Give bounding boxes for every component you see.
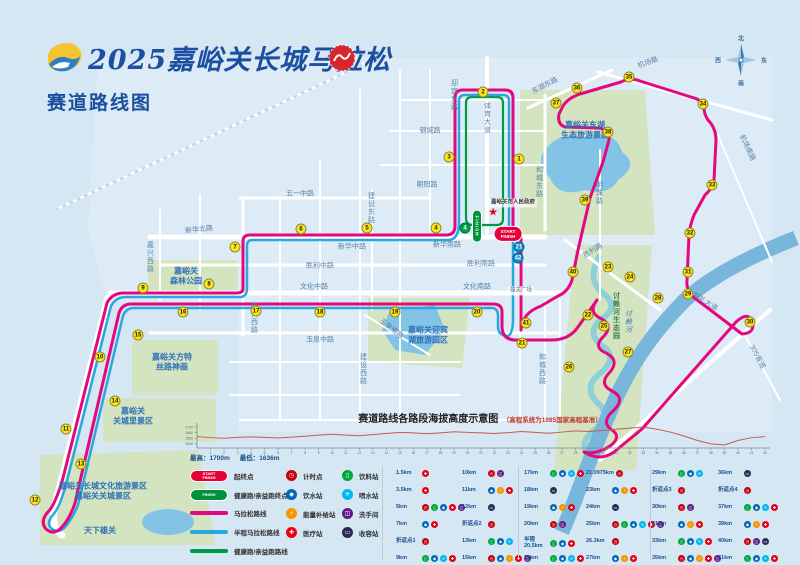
km-marker-35: 35 <box>624 72 635 83</box>
route-line-sample <box>190 549 228 553</box>
legend-route-label: 半程马拉松路线 <box>234 527 280 537</box>
km-table-row: 36km▭ <box>718 470 751 477</box>
start-finish-badge-sample: START FINISH <box>190 470 228 482</box>
street-label: 文化南路 <box>463 284 491 291</box>
km-table-row: 3.5km✚ <box>396 487 429 494</box>
compass-north-label: 北 <box>738 34 744 43</box>
km-table-row: 40km◷◫▭ <box>718 538 769 545</box>
landmark-label: 讨赖河生态园 <box>611 292 620 340</box>
timing-station-icon: ◷ <box>678 487 685 494</box>
km-marker-21: 21 <box>517 338 528 349</box>
street-label: 新华南路 <box>433 242 461 249</box>
legend-station-label: 洗手间 <box>359 509 379 519</box>
km-table-row: 39km◆⚡✚ <box>718 521 769 528</box>
km-table-km-label: 折返点1 <box>396 539 420 545</box>
svg-text:15: 15 <box>398 451 402 455</box>
timing-station-icon: ◷ <box>678 504 685 511</box>
km-table-km-label: 7km <box>396 522 420 528</box>
water-station-icon: ◆ <box>612 555 619 562</box>
star-icon: ★ <box>488 208 498 219</box>
drink-station-icon: ▯ <box>550 555 557 562</box>
km-marker-12: 12 <box>30 495 41 506</box>
svg-text:24: 24 <box>520 451 524 455</box>
water-station-icon: ◆ <box>744 521 751 528</box>
svg-text:7: 7 <box>291 451 293 455</box>
km-table-km-label: 20km <box>524 522 548 528</box>
km-table-row: 折返点1◷ <box>396 538 429 545</box>
km-marker-34: 34 <box>698 99 709 110</box>
km-table-row: 30km◷◫ <box>652 504 694 511</box>
route-map <box>0 0 800 565</box>
km-table-row: 37km▯◆✳✚ <box>718 504 778 511</box>
water-station-icon: ◆ <box>687 538 694 545</box>
km-table-km-label: 折返点3 <box>652 488 676 494</box>
legend-station-item: ✚医疗站 <box>286 527 323 538</box>
water-station-icon: ◆ <box>687 470 694 477</box>
km-marker-9: 9 <box>138 283 149 294</box>
km-table-row: 24km▭ <box>586 504 619 511</box>
toilet-station-icon: ◫ <box>753 538 760 545</box>
street-label: 和城东路 <box>536 166 543 198</box>
svg-text:12: 12 <box>357 451 361 455</box>
legend-station-label: 能量补给站 <box>303 509 336 519</box>
km-marker-19: 19 <box>390 307 401 318</box>
km-table-row: 18km▭ <box>524 487 557 494</box>
km-table-row: 5km◷▯◆✚◫ <box>396 504 465 511</box>
km-table-row: 27km◆⚡✚ <box>586 555 637 562</box>
water-station-icon: ◆ <box>497 555 504 562</box>
water-station-icon: ◆ <box>431 555 438 562</box>
drink-station-icon: ▯ <box>678 538 685 545</box>
km-table-km-label: 31km <box>652 522 676 528</box>
km-marker-16: 16 <box>178 307 189 318</box>
medical-station-icon: ✚ <box>771 555 778 562</box>
km-table-row: 折返点3◷ <box>652 487 685 494</box>
km-marker-14: 14 <box>110 396 121 407</box>
km-table-km-label: 19km <box>524 505 548 511</box>
km-marker-3: 3 <box>444 152 455 163</box>
km-table-km-label: 21km <box>524 556 548 562</box>
energy-station-icon: ⚡ <box>696 555 703 562</box>
legend-station-item: ◫洗手间 <box>342 508 379 519</box>
sweep-station-icon: ▭ <box>550 487 557 494</box>
km-marker-31: 31 <box>683 267 694 278</box>
sweep-station-icon: ▭ <box>612 504 619 511</box>
km-table-km-label: 半程 20.5km <box>524 538 548 550</box>
svg-text:10: 10 <box>330 451 334 455</box>
sweep-station-icon: ▭ <box>744 470 751 477</box>
medical-station-icon: ✚ <box>449 504 456 511</box>
timing-station-icon: ◷ <box>678 555 685 562</box>
medical-station-icon: ✚ <box>762 521 769 528</box>
km-marker-29: 29 <box>683 289 694 300</box>
svg-text:1700: 1700 <box>185 425 193 429</box>
energy-station-icon: ⚡ <box>621 487 628 494</box>
svg-text:16: 16 <box>411 451 415 455</box>
water-station-icon: ◆ <box>559 470 566 477</box>
km-table-row: 12km▭ <box>462 504 495 511</box>
svg-text:23: 23 <box>506 451 510 455</box>
timing-station-icon: ◷ <box>488 521 495 528</box>
legend-station-item: ◆饮水站 <box>286 489 323 500</box>
street-label: 胜利南路 <box>467 261 495 268</box>
km-marker-11: 11 <box>61 424 72 435</box>
km-table-km-label: 折返点4 <box>718 488 742 494</box>
spray-station-icon: ✳ <box>506 538 513 545</box>
legend-station-label: 饮水站 <box>303 490 323 500</box>
km-table-km-label: 5km <box>396 505 420 511</box>
legend-divider <box>382 466 383 560</box>
svg-text:35: 35 <box>668 451 672 455</box>
medical-station-icon: ✚ <box>705 555 712 562</box>
water-station-icon: ◆ <box>630 521 637 528</box>
water-station-icon: ◆ <box>422 521 429 528</box>
legend-station-item: ▯饮料站 <box>342 470 379 481</box>
svg-text:9: 9 <box>318 451 320 455</box>
toilet-station-icon: ◫ <box>559 521 566 528</box>
svg-text:41: 41 <box>750 451 754 455</box>
medical-station-icon: ✚ <box>696 521 703 528</box>
km-table-km-label: 41km <box>718 556 742 562</box>
drink-station-icon: ▯ <box>621 521 628 528</box>
energy-station-icon: ⚡ <box>753 521 760 528</box>
spray-station-icon: ✳ <box>696 538 703 545</box>
svg-text:20: 20 <box>466 451 470 455</box>
km-table-km-label: 3.5km <box>396 488 420 494</box>
timing-station-icon: ◷ <box>616 470 623 477</box>
km-table-row: 20km◷◫ <box>524 521 566 528</box>
timing-station-icon: ◷ <box>612 538 619 545</box>
km-table-row: 35km◷◆⚡✚◫ <box>652 555 721 562</box>
toilet-station-icon: ◫ <box>687 504 694 511</box>
svg-text:30: 30 <box>601 451 605 455</box>
km-marker-17: 17 <box>251 306 262 317</box>
km-table-km-label: 15km <box>462 556 486 562</box>
km-marker-37: 37 <box>551 98 562 109</box>
drink-station-icon: ▯ <box>488 538 495 545</box>
legend-route-label: 健康跑/亲益跑终点 <box>234 490 288 500</box>
svg-text:17: 17 <box>425 451 429 455</box>
drink-station-icon: ▯ <box>342 470 353 481</box>
medical-station-icon: ✚ <box>630 555 637 562</box>
km-marker-39: 39 <box>580 195 591 206</box>
legend-route-item: 半程马拉松路线 <box>190 527 280 537</box>
timing-station-icon: ◷ <box>612 521 619 528</box>
km-marker-2: 2 <box>478 87 489 98</box>
km-table-km-label: 30km <box>652 505 676 511</box>
km-table-row: 26.3km◷ <box>586 538 619 545</box>
compass-east-label: 东 <box>761 56 767 65</box>
km-table-row: 17km▯◆✳✚ <box>524 470 584 477</box>
water-station-icon: ◆ <box>687 555 694 562</box>
km-table-row: 19km◆⚡✚ <box>524 504 575 511</box>
medical-station-icon: ✚ <box>577 555 584 562</box>
medical-station-icon: ✚ <box>431 521 438 528</box>
km-table-row: 29km▯◆✳ <box>652 470 703 477</box>
km-table-row: 31km◆⚡✚ <box>652 521 703 528</box>
svg-text:39: 39 <box>723 451 727 455</box>
energy-station-icon: ⚡ <box>687 521 694 528</box>
km-table-row: 33km▯◆✳✚ <box>652 538 712 545</box>
landmark-label: 嘉峪关长城文化旅游景区 嘉峪关关城景区 <box>59 482 147 503</box>
km-marker-1: 1 <box>514 154 525 165</box>
km-marker-13: 13 <box>76 459 87 470</box>
medical-station-icon: ✚ <box>771 504 778 511</box>
legend-station-item: ✳喷水站 <box>342 489 379 500</box>
drink-station-icon: ▯ <box>744 504 751 511</box>
svg-text:31: 31 <box>614 451 618 455</box>
page-subtitle: 赛道路线图 <box>47 88 152 115</box>
street-label: 建设东路 <box>368 192 375 224</box>
km-table-km-label: 40km <box>718 539 742 545</box>
water-station-icon: ◆ <box>753 504 760 511</box>
medical-station-icon: ✚ <box>568 540 575 547</box>
drink-station-icon: ▯ <box>422 555 429 562</box>
street-label: 体育大道 <box>484 102 491 134</box>
km-table-km-label: 23km <box>586 488 610 494</box>
street-label: 新华中路 <box>338 244 366 251</box>
street-label: 文化中路 <box>300 284 328 291</box>
km-table-km-label: 11km <box>462 488 486 494</box>
timing-station-icon: ◷ <box>488 470 495 477</box>
medical-station-icon: ✚ <box>568 504 575 511</box>
km-marker-10: 10 <box>95 352 106 363</box>
street-label: 五一中路 <box>286 191 314 198</box>
water-station-icon: ◆ <box>440 504 447 511</box>
legend-station-label: 收容站 <box>359 528 379 538</box>
svg-text:1640: 1640 <box>185 442 193 446</box>
landmark-label: 嘉峪关方特 丝路神画 <box>152 353 192 374</box>
km-marker-7: 7 <box>230 242 241 253</box>
drink-station-icon: ▯ <box>550 540 557 547</box>
finish-badge-sample: FINISH <box>190 489 228 501</box>
svg-text:32: 32 <box>628 451 632 455</box>
event-logo <box>44 40 84 74</box>
km-marker-20: 20 <box>472 307 483 318</box>
energy-station-icon: ⚡ <box>286 508 297 519</box>
drink-station-icon: ▯ <box>744 555 751 562</box>
km-table-km-label: 37km <box>718 505 742 511</box>
km-table-km-label: 33km <box>652 539 676 545</box>
km-marker-4: 4 <box>460 223 471 234</box>
timing-station-icon: ◷ <box>744 487 751 494</box>
legend-station-label: 喷水站 <box>359 490 379 500</box>
km-marker-40: 40 <box>568 267 579 278</box>
street-label: 胜利中路 <box>306 263 334 270</box>
medical-station-icon: ✚ <box>449 555 456 562</box>
km-table-row: 23km◆⚡✚ <box>586 487 637 494</box>
energy-station-icon: ⚡ <box>497 487 504 494</box>
km-table-km-label: 25km <box>586 522 610 528</box>
street-label: 讨赖河 <box>625 310 632 334</box>
drink-station-icon: ▯ <box>678 470 685 477</box>
spray-station-icon: ✳ <box>696 470 703 477</box>
km-marker-5: 5 <box>362 223 373 234</box>
street-label: 建设西路 <box>360 353 367 385</box>
km-table-row: 折返点4◷ <box>718 487 751 494</box>
km-table-km-label: 35km <box>652 556 676 562</box>
svg-text:26: 26 <box>547 451 551 455</box>
landmark-label: 嘉峪关 森林公园 <box>170 267 202 288</box>
svg-text:34: 34 <box>655 451 659 455</box>
organizer-seal <box>328 44 356 72</box>
timing-station-icon: ◷ <box>422 538 429 545</box>
street-label: 朝阳路 <box>417 182 438 189</box>
legend-station-label: 医疗站 <box>303 528 323 538</box>
water-station-icon: ◆ <box>559 555 566 562</box>
km-table-row: 1.5km✚ <box>396 470 429 477</box>
km-table-km-label: 29km <box>652 471 676 477</box>
km-table-row: 9km▯◆✳✚ <box>396 555 456 562</box>
km-table-row: 11km◆⚡✚ <box>462 487 513 494</box>
km-table-row: 半程 20.5km▯◆✚ <box>524 538 575 550</box>
km-table-km-label: 21.0975km <box>586 471 614 477</box>
route-line-sample <box>190 530 228 534</box>
street-label: 迎宾东路 <box>451 79 458 111</box>
landmark-label: 雄关广场 <box>508 286 534 295</box>
km-marker-8: 8 <box>204 279 215 290</box>
spray-station-icon: ✳ <box>639 521 646 528</box>
svg-text:25: 25 <box>533 451 537 455</box>
spray-station-icon: ✳ <box>342 489 353 500</box>
km-table-km-label: 12km <box>462 505 486 511</box>
svg-text:11: 11 <box>344 451 348 455</box>
km-table-row: 15km◷◆⚡✚◫ <box>462 555 531 562</box>
km-marker-15: 15 <box>133 330 144 341</box>
km-table-row: 41km▯◆✳✚ <box>718 555 778 562</box>
legend-divider <box>518 466 519 560</box>
km-table-row: 21km▯◆✳✚ <box>524 555 584 562</box>
elevation-stats: 最高：1700m最低：1636m <box>190 452 290 462</box>
sweep-station-icon: ▭ <box>342 527 353 538</box>
toilet-station-icon: ◫ <box>497 470 504 477</box>
water-station-icon: ◆ <box>559 540 566 547</box>
toilet-station-icon: ◫ <box>342 508 353 519</box>
water-station-icon: ◆ <box>286 489 297 500</box>
street-label: 和城西路 <box>539 353 546 385</box>
water-station-icon: ◆ <box>488 487 495 494</box>
km-table-km-label: 39km <box>718 522 742 528</box>
km-marker-32: 32 <box>685 228 696 239</box>
legend-station-item: ▭收容站 <box>342 527 379 538</box>
km-marker-4: 4 <box>431 223 442 234</box>
legend-station-item: ◷计时点 <box>286 470 323 481</box>
km-table-km-label: 17km <box>524 471 548 477</box>
energy-station-icon: ⚡ <box>621 555 628 562</box>
km-table-km-label: 13km <box>462 539 486 545</box>
street-label: 嘉兴西路 <box>147 241 154 273</box>
elevation-min: 最低：1636m <box>240 455 280 462</box>
compass-west-label: 西 <box>715 56 721 65</box>
timing-station-icon: ◷ <box>744 538 751 545</box>
km-marker-24: 24 <box>625 272 636 283</box>
svg-text:27: 27 <box>560 451 564 455</box>
svg-text:28: 28 <box>574 451 578 455</box>
km-marker-38: 38 <box>603 127 614 138</box>
km-table-row: 10km◷◫ <box>462 470 504 477</box>
km-marker-36: 36 <box>572 83 583 94</box>
sweep-station-icon: ▭ <box>488 504 495 511</box>
km-table-km-label: 9km <box>396 556 420 562</box>
km-marker-22: 22 <box>583 310 594 321</box>
svg-text:18: 18 <box>439 451 443 455</box>
spray-station-icon: ✳ <box>568 555 575 562</box>
svg-text:14: 14 <box>384 451 388 455</box>
svg-text:37: 37 <box>695 451 699 455</box>
km-table-km-label: 18km <box>524 488 548 494</box>
water-station-icon: ◆ <box>678 521 685 528</box>
km-table-km-label: 10km <box>462 471 486 477</box>
svg-text:36: 36 <box>682 451 686 455</box>
elevation-max: 最高：1700m <box>190 455 230 462</box>
energy-station-icon: ⚡ <box>559 504 566 511</box>
km-marker-18: 18 <box>315 307 326 318</box>
water-station-icon: ◆ <box>753 555 760 562</box>
legend-route-label: 健康跑/亲益跑路线 <box>234 546 288 556</box>
water-station-icon: ◆ <box>550 504 557 511</box>
svg-text:8: 8 <box>304 451 306 455</box>
street-label: 钢城路 <box>420 128 441 135</box>
km-marker-23: 23 <box>603 262 614 273</box>
timing-station-icon: ◷ <box>550 521 557 528</box>
svg-text:13: 13 <box>371 451 375 455</box>
spray-station-icon: ✳ <box>440 555 447 562</box>
legend-station-label: 饮料站 <box>359 471 379 481</box>
km-marker-41: 41 <box>521 318 532 329</box>
timing-station-icon: ◷ <box>422 504 429 511</box>
medical-station-icon: ✚ <box>506 487 513 494</box>
km-marker-21: 21 <box>514 242 525 253</box>
sweep-station-icon: ▭ <box>762 538 769 545</box>
drink-station-icon: ▯ <box>431 504 438 511</box>
water-station-icon: ◆ <box>612 487 619 494</box>
km-marker-30: 30 <box>745 317 756 328</box>
landmark-label: 嘉峪关 关城里景区 <box>113 407 153 428</box>
svg-text:40: 40 <box>736 451 740 455</box>
spray-station-icon: ✳ <box>568 470 575 477</box>
km-table-row: 折返点2◷ <box>462 521 495 528</box>
svg-text:22: 22 <box>493 451 497 455</box>
km-table-km-label: 折返点2 <box>462 522 486 528</box>
km-table-row: 21.0975km◷ <box>586 470 623 477</box>
km-marker-33: 33 <box>707 180 718 191</box>
svg-text:1680: 1680 <box>185 431 193 435</box>
street-label: 明珠路 <box>596 181 603 205</box>
legend-divider <box>650 466 651 560</box>
km-table-km-label: 26.3km <box>586 539 610 545</box>
start-finish-badge: START FINISH <box>494 226 523 242</box>
km-table-row: 7km◆✚ <box>396 521 438 528</box>
km-table-km-label: 36km <box>718 471 742 477</box>
water-station-icon: ◆ <box>497 538 504 545</box>
km-table-km-label: 1.5km <box>396 471 420 477</box>
legend-station-item: ⚡能量补给站 <box>286 508 336 519</box>
medical-station-icon: ✚ <box>577 470 584 477</box>
km-marker-26: 26 <box>564 362 575 373</box>
medical-station-icon: ✚ <box>422 487 429 494</box>
km-table-row: 13km▯◆✳ <box>462 538 513 545</box>
health-run-finish-badge: FINISH <box>472 210 482 243</box>
street-label: 玉泉中路 <box>306 337 334 344</box>
legend-route-item: FINISH健康跑/亲益跑终点 <box>190 489 288 501</box>
legend-route-label: 起终点 <box>234 471 254 481</box>
svg-text:1660: 1660 <box>185 437 193 441</box>
spray-station-icon: ✳ <box>762 504 769 511</box>
timing-station-icon: ◷ <box>488 555 495 562</box>
spray-station-icon: ✳ <box>762 555 769 562</box>
legend-route-item: START FINISH起终点 <box>190 470 254 482</box>
svg-text:42: 42 <box>763 451 767 455</box>
